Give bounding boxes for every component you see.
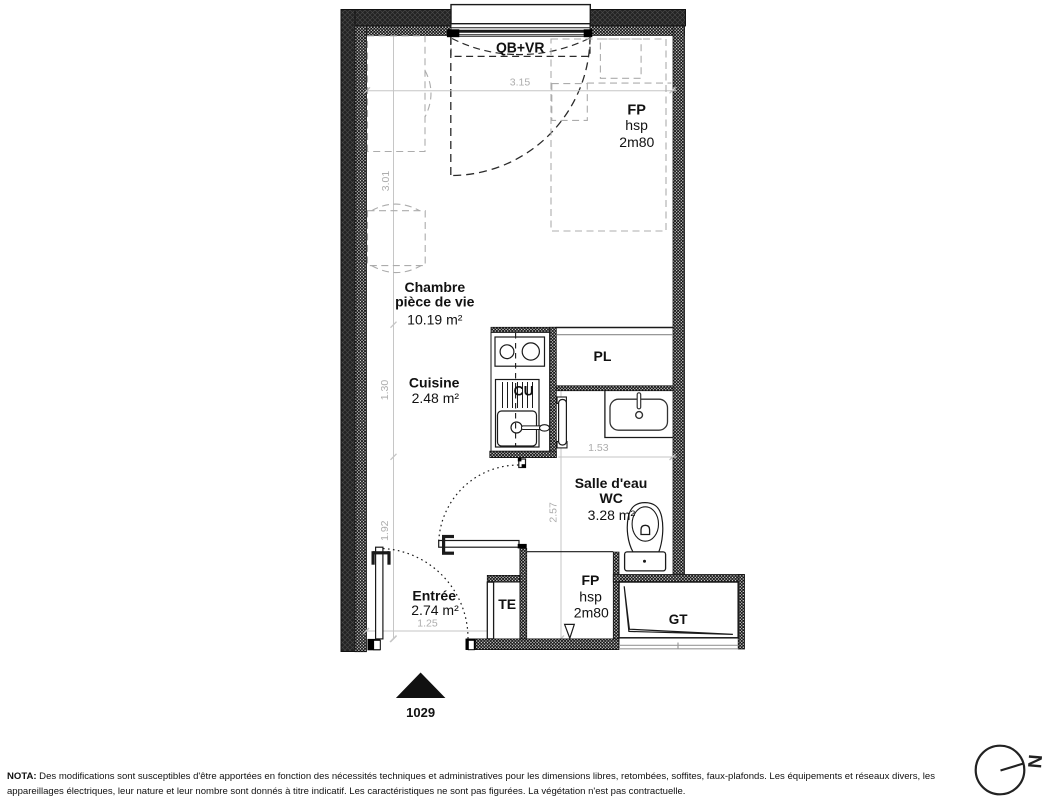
svg-text:Entrée: Entrée xyxy=(412,588,456,604)
svg-text:Salle d'eau: Salle d'eau xyxy=(575,475,648,491)
svg-text:2.57: 2.57 xyxy=(547,502,559,523)
svg-text:3.28 m²: 3.28 m² xyxy=(588,507,636,523)
svg-text:2m80: 2m80 xyxy=(574,604,609,620)
svg-text:PL: PL xyxy=(594,348,612,364)
svg-text:1.92: 1.92 xyxy=(379,520,391,541)
svg-text:1.25: 1.25 xyxy=(417,617,438,629)
svg-text:pièce de vie: pièce de vie xyxy=(395,294,475,310)
svg-text:QB+VR: QB+VR xyxy=(496,40,545,57)
svg-text:10.19 m²: 10.19 m² xyxy=(407,312,463,328)
svg-text:1.53: 1.53 xyxy=(588,442,609,454)
svg-text:appareillages électriques, leu: appareillages électriques, leur nature e… xyxy=(7,786,685,797)
svg-text:3.15: 3.15 xyxy=(510,77,531,89)
svg-text:Cuisine: Cuisine xyxy=(409,375,460,391)
svg-text:hsp: hsp xyxy=(625,117,648,133)
svg-text:2.48 m²: 2.48 m² xyxy=(412,390,460,406)
svg-text:NOTA: Des modifications sont s: NOTA: Des modifications sont susceptible… xyxy=(7,771,935,782)
svg-text:FP: FP xyxy=(627,102,646,118)
svg-text:TE: TE xyxy=(498,596,516,612)
svg-text:2m80: 2m80 xyxy=(619,134,654,150)
svg-text:WC: WC xyxy=(600,490,623,506)
svg-text:hsp: hsp xyxy=(579,589,602,605)
svg-text:N: N xyxy=(1023,754,1043,770)
svg-text:1.30: 1.30 xyxy=(379,380,391,401)
svg-text:1029: 1029 xyxy=(406,705,435,720)
svg-text:GT: GT xyxy=(669,612,689,627)
svg-text:2.74 m²: 2.74 m² xyxy=(411,602,459,618)
svg-text:3.01: 3.01 xyxy=(380,171,392,192)
svg-text:CU: CU xyxy=(513,382,533,398)
svg-text:FP: FP xyxy=(581,572,599,588)
